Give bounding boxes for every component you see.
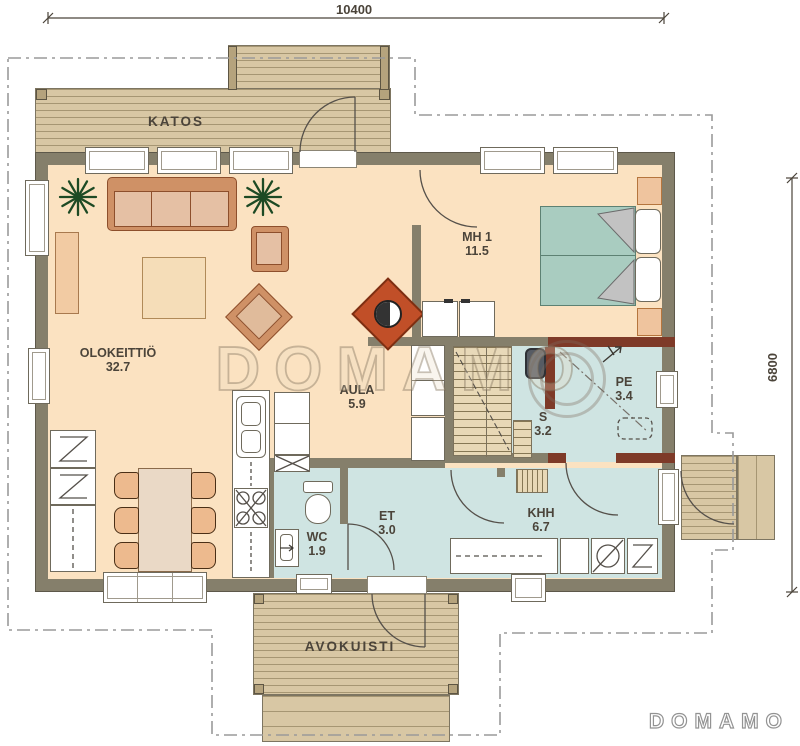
room-area: 11.5 <box>462 244 492 258</box>
dimension-height: 6800 <box>765 353 780 382</box>
plant-icon <box>245 179 281 215</box>
bed-pillows <box>598 208 634 304</box>
watermark-ring <box>528 340 606 418</box>
room-label-avokuisti: AVOKUISTI <box>305 640 396 654</box>
room-label-pe: PE 3.4 <box>615 375 632 403</box>
room-area: 3.2 <box>534 424 551 438</box>
pe-basin-dashed <box>618 418 652 439</box>
deck-door-arc <box>300 97 355 152</box>
right-dimension-line <box>786 173 798 597</box>
room-area: 1.9 <box>307 544 328 558</box>
mh1-door-arc <box>420 170 477 227</box>
room-name: WC <box>307 530 328 544</box>
plant-icon <box>60 179 96 215</box>
wc-sink-arrow <box>280 545 293 551</box>
room-name: PE <box>615 375 632 389</box>
room-area: 32.7 <box>80 360 156 374</box>
room-label-olokeittio: OLOKEITTIÖ 32.7 <box>80 346 156 374</box>
appliance-symbols <box>60 418 652 574</box>
room-label-mh1: MH 1 11.5 <box>462 230 492 258</box>
pe-door-arc <box>566 463 618 515</box>
dryer-zigzag <box>633 545 652 567</box>
dimension-width: 10400 <box>336 2 372 17</box>
room-name: MH 1 <box>462 230 492 244</box>
room-name: AVOKUISTI <box>305 639 396 654</box>
floor-plan: KATOS OLOKEITTIÖ 32.7 MH 1 11.5 AULA 5.9… <box>0 0 800 746</box>
room-label-katos: KATOS <box>148 115 204 129</box>
khh-door-arc <box>451 470 504 523</box>
side-deck-door-arc <box>681 471 734 524</box>
room-label-khh: KHH 6.7 <box>527 506 554 534</box>
room-label-s: S 3.2 <box>534 410 551 438</box>
room-label-et: ET 3.0 <box>378 509 395 537</box>
room-name: OLOKEITTIÖ <box>80 346 156 360</box>
freezer-zigzag <box>60 475 87 498</box>
room-area: 6.7 <box>527 520 554 534</box>
watermark-ring-inner <box>540 352 594 406</box>
room-area: 3.4 <box>615 389 632 403</box>
room-area: 3.0 <box>378 523 395 537</box>
room-name: ET <box>378 509 395 523</box>
fridge-zigzag <box>60 437 87 461</box>
room-name: KHH <box>527 506 554 520</box>
room-label-wc: WC 1.9 <box>307 530 328 558</box>
shower-icon <box>603 346 621 362</box>
watermark-logo: DOMAMO <box>649 710 789 734</box>
room-name: KATOS <box>148 114 204 129</box>
